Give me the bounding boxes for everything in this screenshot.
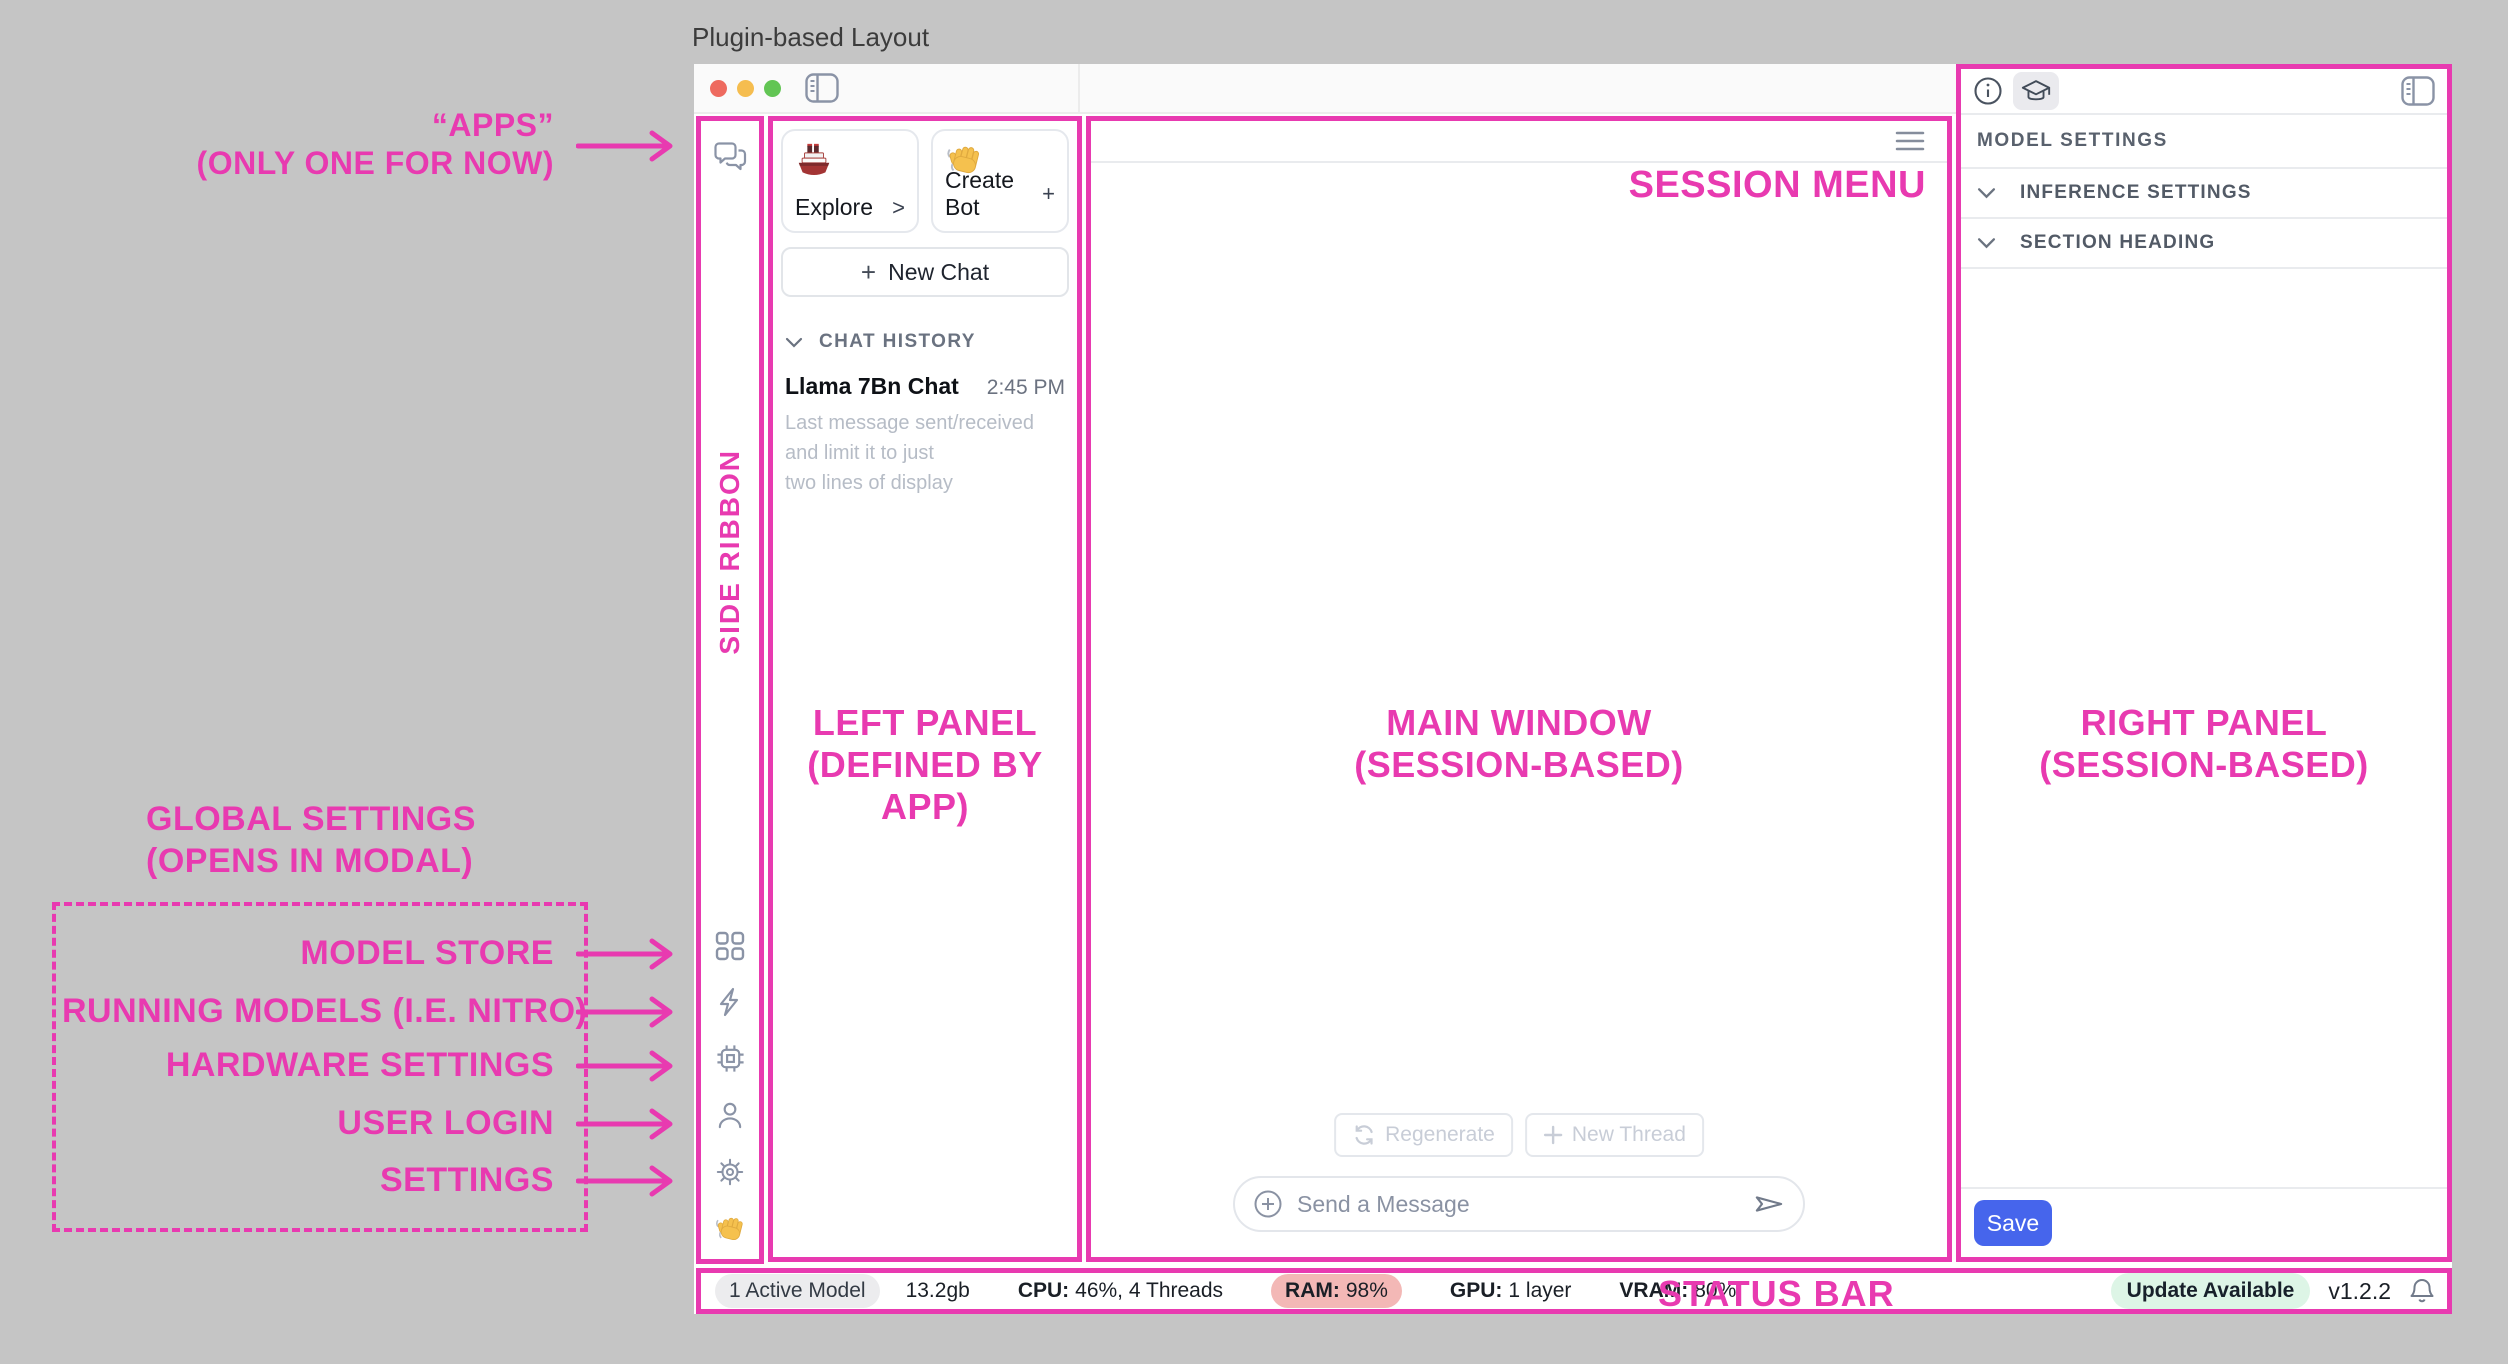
thread-actions: Regenerate New Thread <box>1334 1113 1704 1157</box>
chat-history-label: CHAT HISTORY <box>819 331 976 353</box>
ship-emoji-icon <box>795 141 833 179</box>
page-title: Plugin-based Layout <box>692 22 929 53</box>
create-bot-card-label: Create Bot <box>945 167 1042 221</box>
sidebar-toggle-icon[interactable] <box>2401 76 2435 106</box>
cpu-usage: CPU:46%, 4 Threads <box>1018 1279 1223 1303</box>
attach-plus-icon[interactable] <box>1253 1189 1283 1219</box>
settings-gear-icon[interactable] <box>715 1157 745 1187</box>
model-settings-heading: MODEL SETTINGS <box>1961 115 2447 169</box>
chevron-down-icon <box>785 337 803 348</box>
apps-annotation: “APPS” (ONLY ONE FOR NOW) <box>154 106 554 182</box>
chat-item-time: 2:45 PM <box>987 376 1065 400</box>
user-login-arrow <box>576 1106 684 1142</box>
titlebar-divider <box>1078 64 1080 112</box>
chat-item-title: Llama 7Bn Chat <box>785 373 959 400</box>
message-composer[interactable] <box>1233 1176 1805 1232</box>
new-chat-label: New Chat <box>888 259 989 286</box>
hardware-settings-annotation: HARDWARE SETTINGS <box>62 1046 554 1085</box>
bell-icon[interactable] <box>2409 1277 2435 1305</box>
explore-card[interactable]: Explore > <box>781 129 919 233</box>
inference-settings-section[interactable]: INFERENCE SETTINGS <box>1961 169 2447 219</box>
new-thread-button[interactable]: New Thread <box>1525 1113 1704 1157</box>
main-window-topbar <box>1091 121 1947 163</box>
apps-arrow <box>576 128 684 164</box>
running-models-icon[interactable] <box>715 987 745 1017</box>
create-bot-card[interactable]: Create Bot + <box>931 129 1069 233</box>
update-available-badge[interactable]: Update Available <box>2111 1273 2311 1309</box>
active-model-badge: 1 Active Model <box>715 1274 880 1308</box>
hamburger-menu-icon[interactable] <box>1895 130 1925 152</box>
right-panel-annotation: RIGHT PANEL (SESSION-BASED) <box>1956 702 2452 786</box>
status-bar: 1 Active Model 13.2gb CPU:46%, 4 Threads… <box>696 1268 2452 1314</box>
settings-annotation: SETTINGS <box>62 1161 554 1200</box>
left-panel: Explore > <box>768 116 1082 1262</box>
running-models-annotation: RUNNING MODELS (I.E. NITRO) <box>62 992 554 1031</box>
section-heading-label: SECTION HEADING <box>2020 232 2215 254</box>
section-heading-section[interactable]: SECTION HEADING <box>1961 219 2447 269</box>
zoom-window-button[interactable] <box>764 80 781 97</box>
chat-list-item[interactable]: Llama 7Bn Chat 2:45 PM Last message sent… <box>785 373 1065 498</box>
chat-app-icon[interactable] <box>714 141 747 172</box>
left-panel-annotation: LEFT PANEL (DEFINED BY APP) <box>768 702 1082 828</box>
plus-icon: + <box>861 259 876 285</box>
model-store-annotation: MODEL STORE <box>62 934 554 973</box>
plus-icon <box>1543 1125 1563 1145</box>
explore-card-label: Explore <box>795 194 873 221</box>
info-icon[interactable] <box>1973 76 2003 106</box>
status-bar-annotation: STATUS BAR <box>1658 1273 1895 1315</box>
graduation-cap-icon <box>2020 78 2052 105</box>
global-settings-annotation: GLOBAL SETTINGS (OPENS IN MODAL) <box>146 798 476 882</box>
app-version: v1.2.2 <box>2328 1278 2391 1305</box>
chat-history-header[interactable]: CHAT HISTORY <box>785 331 1065 353</box>
refresh-icon <box>1352 1123 1376 1147</box>
app-cards-row: Explore > <box>781 129 1069 233</box>
message-input[interactable] <box>1297 1191 1739 1218</box>
user-login-annotation: USER LOGIN <box>62 1104 554 1143</box>
ribbon-global-icons <box>714 931 746 1245</box>
ram-usage-badge: RAM:98% <box>1271 1274 1402 1308</box>
main-window-annotation: MAIN WINDOW (SESSION-BASED) <box>1086 702 1952 786</box>
chevron-down-icon <box>1977 187 1996 199</box>
explore-card-chevron: > <box>892 195 905 221</box>
chevron-down-icon <box>1977 237 1996 249</box>
window-titlebar <box>694 64 1956 114</box>
right-panel: MODEL SETTINGS INFERENCE SETTINGS SECTIO… <box>1956 64 2452 1262</box>
main-window: Regenerate New Thread <box>1086 116 1952 1262</box>
session-menu-annotation: SESSION MENU <box>1406 164 1926 207</box>
hardware-settings-icon[interactable] <box>715 1043 746 1074</box>
model-settings-tab[interactable] <box>2013 72 2059 110</box>
create-bot-card-plus: + <box>1042 181 1055 207</box>
close-window-button[interactable] <box>710 80 727 97</box>
gpu-usage: GPU:1 layer <box>1450 1279 1572 1303</box>
hardware-settings-arrow <box>576 1048 684 1084</box>
memory-usage: 13.2gb <box>906 1279 970 1303</box>
model-store-arrow <box>576 936 684 972</box>
sidebar-toggle-icon[interactable] <box>805 73 839 103</box>
side-ribbon-annotation: SIDE RIBBON <box>714 449 746 655</box>
design-canvas: Plugin-based Layout SIDE RIBBON <box>0 0 2508 1364</box>
right-panel-header <box>1961 69 2447 115</box>
wave-hand-icon[interactable] <box>714 1213 746 1245</box>
new-thread-label: New Thread <box>1572 1123 1686 1147</box>
save-button[interactable]: Save <box>1974 1200 2052 1246</box>
minimize-window-button[interactable] <box>737 80 754 97</box>
settings-arrow <box>576 1163 684 1199</box>
inference-settings-label: INFERENCE SETTINGS <box>2020 182 2252 204</box>
model-store-icon[interactable] <box>715 931 745 961</box>
running-models-arrow <box>576 994 684 1030</box>
regenerate-label: Regenerate <box>1385 1123 1495 1147</box>
user-login-icon[interactable] <box>715 1100 745 1131</box>
regenerate-button[interactable]: Regenerate <box>1334 1113 1513 1157</box>
new-chat-button[interactable]: + New Chat <box>781 247 1069 297</box>
right-panel-footer: Save <box>1961 1187 2447 1257</box>
side-ribbon: SIDE RIBBON <box>696 116 764 1264</box>
chat-item-preview: Last message sent/received and limit it … <box>785 408 1065 498</box>
send-icon[interactable] <box>1753 1190 1785 1218</box>
